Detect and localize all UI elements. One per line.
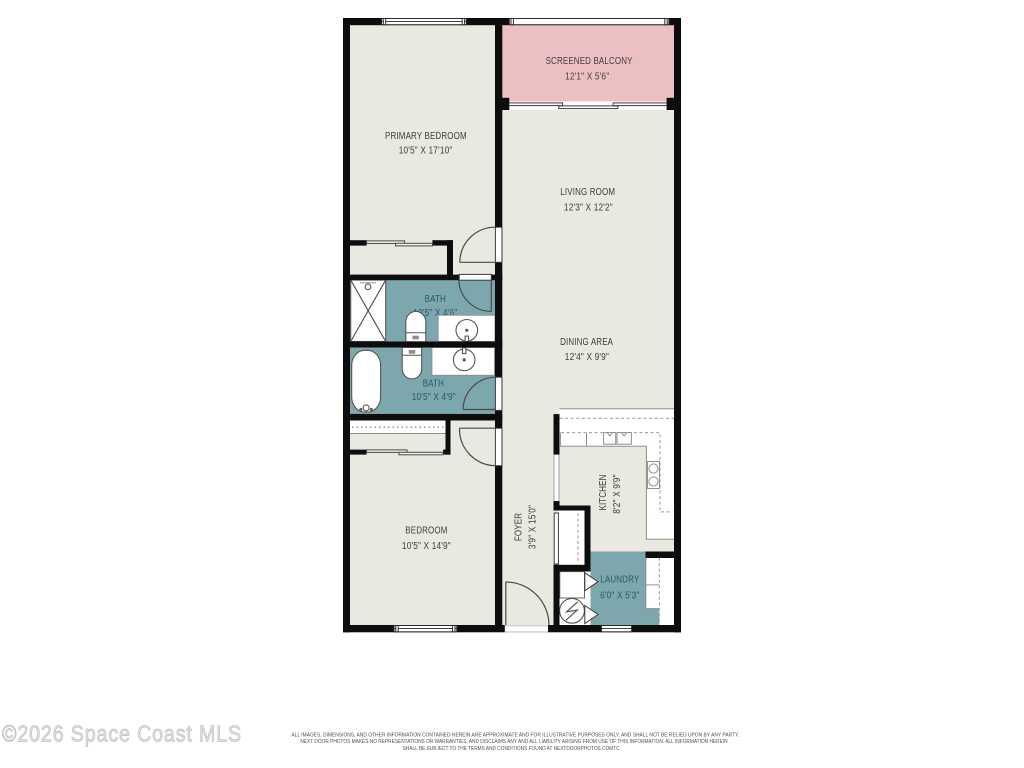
svg-text:10'5" X 4'9": 10'5" X 4'9" [412,391,456,402]
svg-text:SCREENED BALCONY: SCREENED BALCONY [546,55,633,66]
svg-text:©2026 Space Coast MLS: ©2026 Space Coast MLS [2,721,242,747]
svg-text:FOYER: FOYER [512,513,523,541]
svg-text:12'3" X 12'2": 12'3" X 12'2" [564,202,613,213]
svg-text:BEDROOM: BEDROOM [405,524,447,535]
svg-text:8'2" X 9'9": 8'2" X 9'9" [611,474,622,513]
svg-text:SHALL BE SUBJECT TO THE TERMS: SHALL BE SUBJECT TO THE TERMS AND CONDIT… [403,746,621,752]
svg-text:BATH: BATH [423,377,444,388]
svg-text:12'1" X 5'6": 12'1" X 5'6" [565,71,609,82]
svg-text:BATH: BATH [425,293,446,304]
svg-text:12'4" X 9'9": 12'4" X 9'9" [565,351,609,362]
svg-text:PRIMARY BEDROOM: PRIMARY BEDROOM [385,130,467,141]
svg-text:DINING AREA: DINING AREA [560,336,614,347]
svg-text:KITCHEN: KITCHEN [597,474,608,510]
svg-text:6'0" X 5'3": 6'0" X 5'3" [600,590,639,601]
svg-text:ALL IMAGES, DIMENSIONS, AND OT: ALL IMAGES, DIMENSIONS, AND OTHER INFORM… [291,732,739,738]
svg-text:10'5" X 14'9": 10'5" X 14'9" [402,540,451,551]
svg-text:3'9" X 15'0": 3'9" X 15'0" [527,505,538,549]
svg-text:10'5" X 17'10": 10'5" X 17'10" [399,145,453,156]
svg-text:NEXT DOOR PHOTOS MAKES NO REPR: NEXT DOOR PHOTOS MAKES NO REPRESENTATION… [300,739,728,745]
svg-text:LAUNDRY: LAUNDRY [600,573,639,584]
svg-text:LIVING ROOM: LIVING ROOM [560,186,615,197]
